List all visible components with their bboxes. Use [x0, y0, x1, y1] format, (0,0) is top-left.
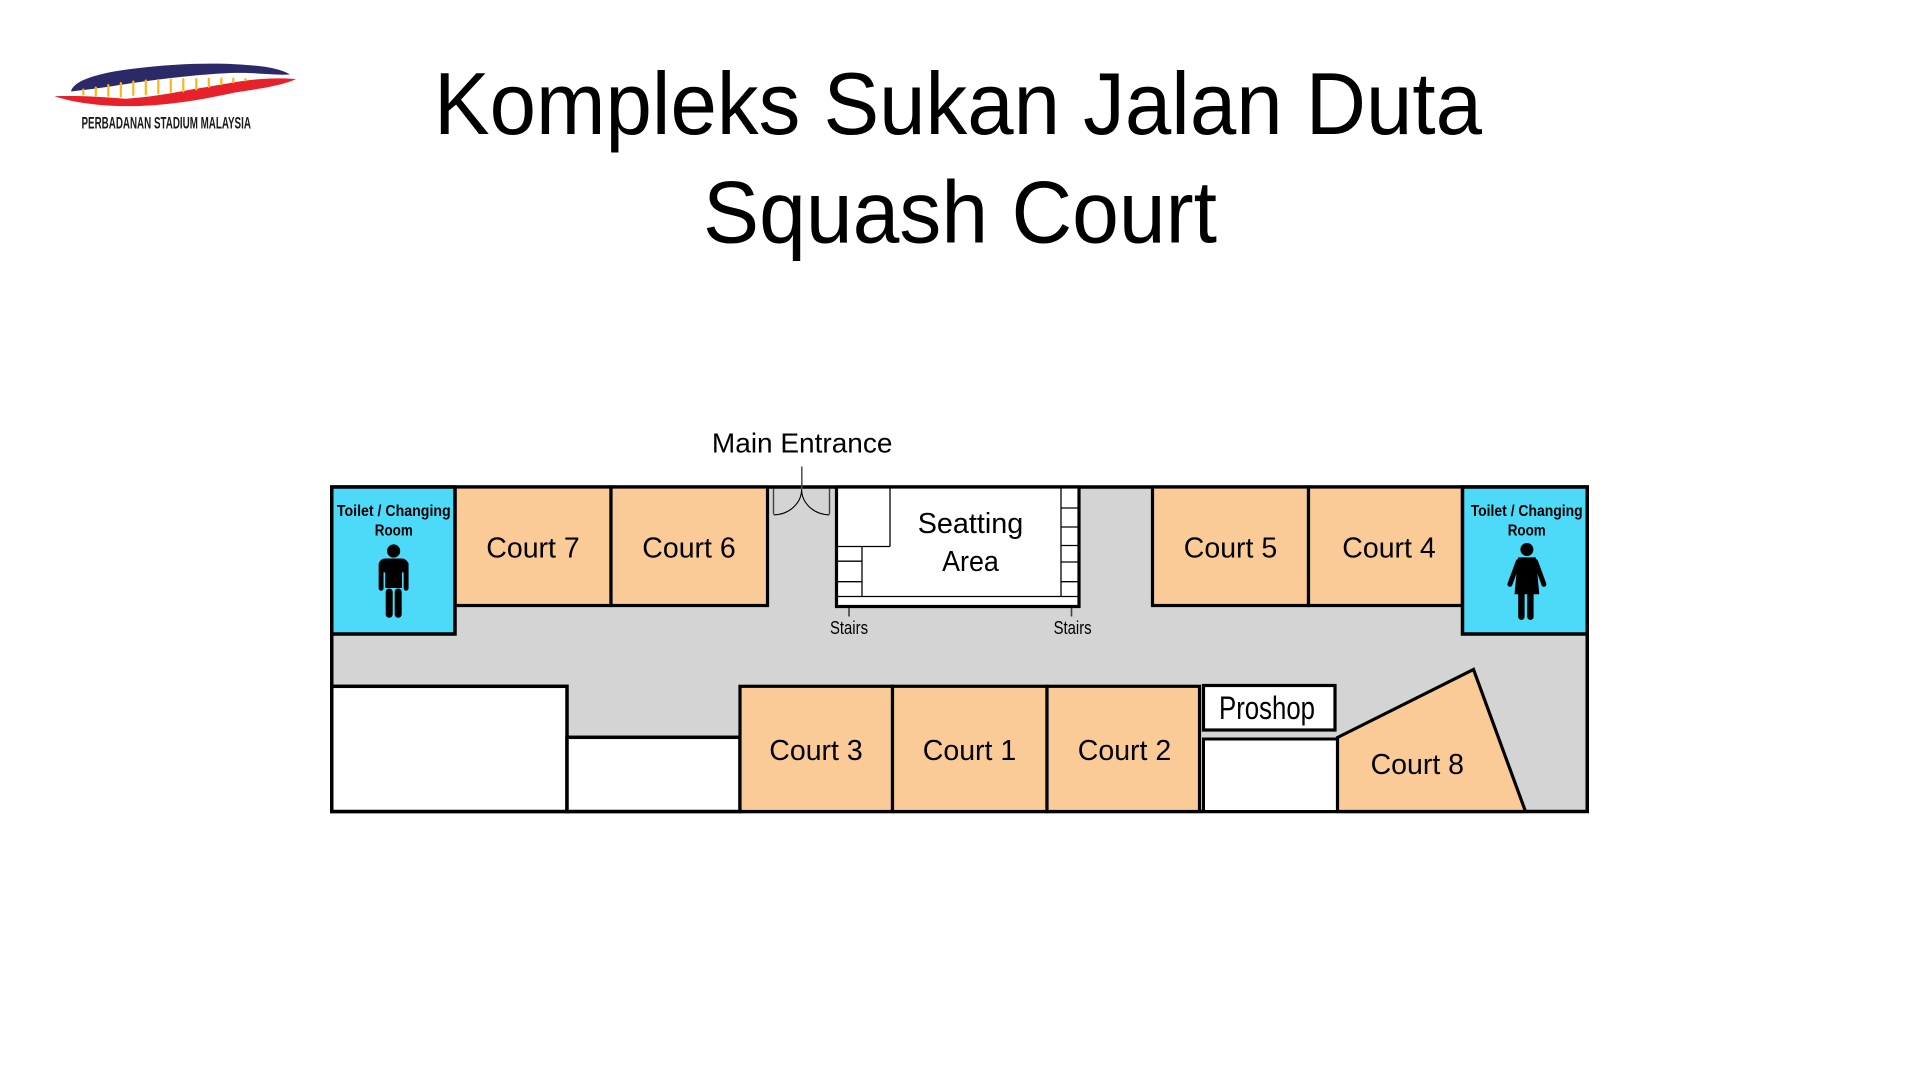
svg-text:Court 7: Court 7	[486, 533, 579, 565]
svg-text:Stairs: Stairs	[830, 618, 868, 638]
svg-text:Squash Court: Squash Court	[703, 163, 1217, 262]
svg-text:Court 1: Court 1	[923, 735, 1016, 767]
svg-text:Kompleks Sukan Jalan Duta: Kompleks Sukan Jalan Duta	[434, 54, 1482, 153]
svg-text:Court 5: Court 5	[1184, 533, 1277, 565]
svg-text:Stairs: Stairs	[1054, 618, 1092, 638]
svg-text:Room: Room	[375, 523, 413, 540]
svg-text:Toilet / Changing: Toilet / Changing	[1471, 503, 1583, 520]
svg-text:Court 4: Court 4	[1342, 533, 1436, 565]
svg-text:Court 6: Court 6	[642, 533, 735, 565]
svg-text:PERBADANAN STADIUM MALAYSIA: PERBADANAN STADIUM MALAYSIA	[82, 115, 251, 133]
svg-text:Proshop: Proshop	[1219, 690, 1315, 726]
svg-text:Toilet / Changing: Toilet / Changing	[337, 503, 451, 520]
svg-text:Area: Area	[942, 546, 999, 578]
svg-text:Court 8: Court 8	[1371, 749, 1464, 781]
svg-text:Court 3: Court 3	[769, 735, 862, 767]
svg-text:Seatting: Seatting	[918, 508, 1024, 540]
svg-text:Main Entrance: Main Entrance	[712, 428, 893, 459]
svg-text:Room: Room	[1508, 523, 1546, 540]
svg-text:Court 2: Court 2	[1078, 735, 1171, 767]
